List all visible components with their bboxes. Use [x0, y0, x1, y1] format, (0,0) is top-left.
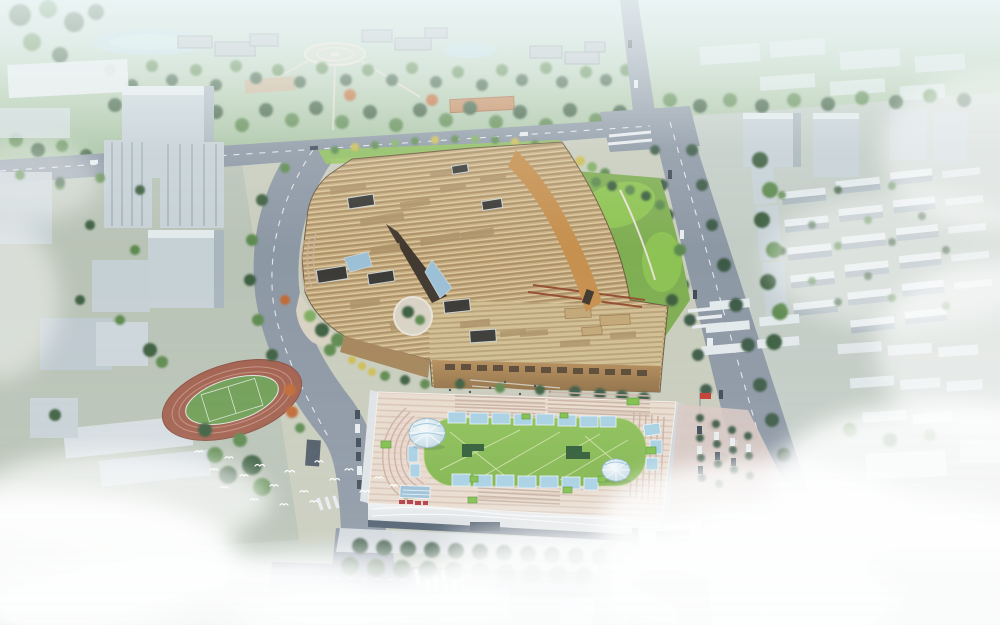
architectural-rendering — [0, 0, 1000, 625]
atmospheric-tint — [0, 0, 1000, 625]
rendering-canvas — [0, 0, 1000, 625]
